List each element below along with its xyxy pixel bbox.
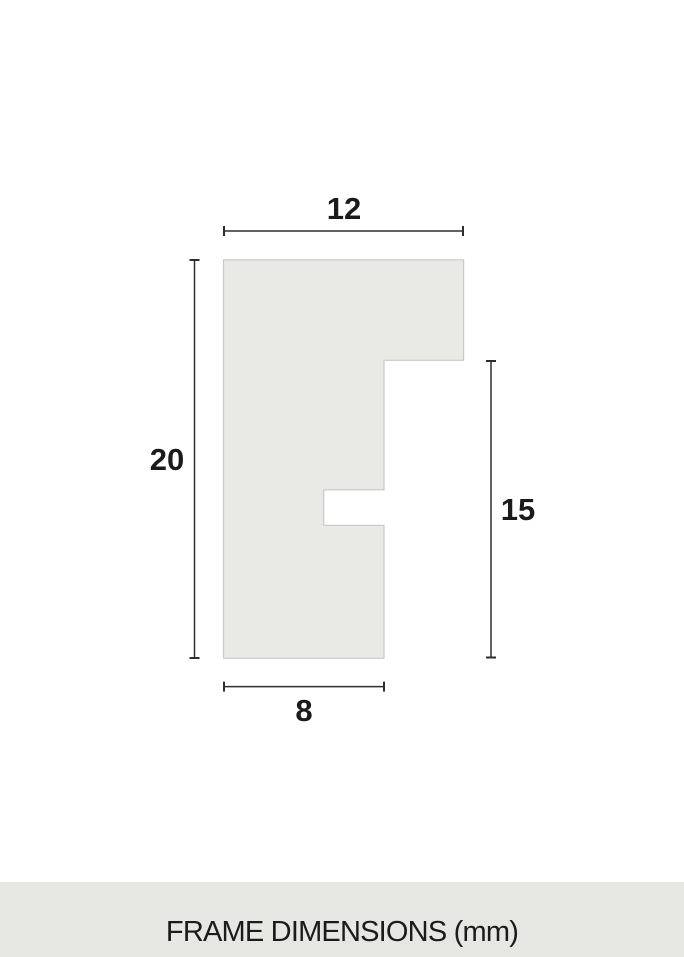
svg-text:FRAME DIMENSIONS (mm): FRAME DIMENSIONS (mm) xyxy=(166,916,518,948)
svg-text:8: 8 xyxy=(295,693,312,728)
svg-text:12: 12 xyxy=(327,191,361,226)
svg-text:20: 20 xyxy=(150,442,184,477)
svg-text:15: 15 xyxy=(501,492,535,527)
